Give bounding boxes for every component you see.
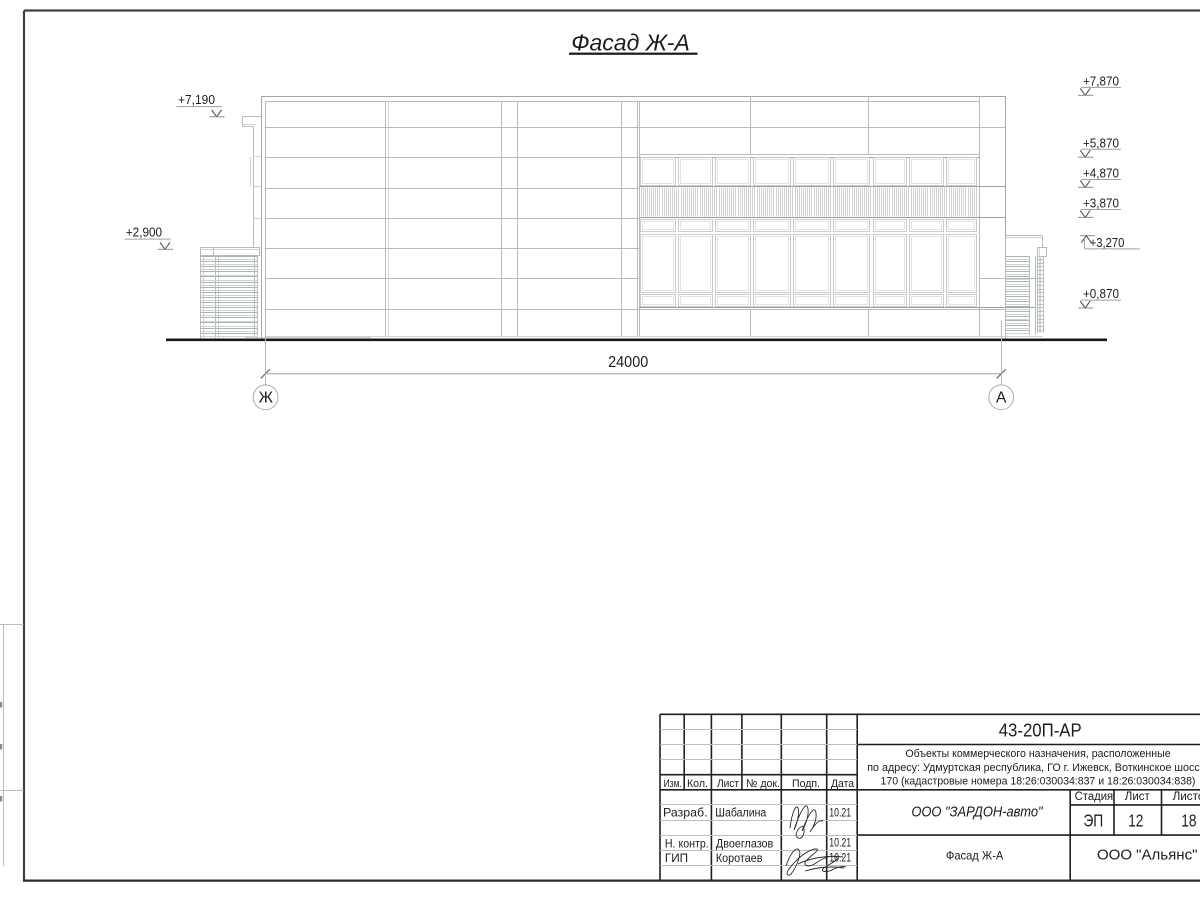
svg-text:Н. контр.: Н. контр.	[665, 836, 709, 850]
svg-text:10.21: 10.21	[829, 806, 851, 820]
svg-text:Кол.: Кол.	[687, 778, 708, 790]
svg-text:+7,870: +7,870	[1083, 74, 1119, 89]
svg-text:Объекты коммерческого назначен: Объекты коммерческого назначения, распол…	[905, 748, 1170, 760]
svg-text:Стадия: Стадия	[1075, 791, 1114, 803]
svg-text:Фасад Ж-А: Фасад Ж-А	[571, 29, 690, 55]
svg-text:+3,270: +3,270	[1090, 235, 1125, 250]
svg-text:ЭП: ЭП	[1083, 810, 1103, 830]
svg-text:Дата: Дата	[831, 778, 855, 790]
svg-text:ГИП: ГИП	[665, 851, 688, 865]
svg-text:Ж: Ж	[259, 390, 274, 407]
svg-text:№ док.: № док.	[746, 778, 780, 790]
svg-text:+3,870: +3,870	[1083, 196, 1119, 211]
svg-text:18: 18	[1181, 810, 1196, 830]
svg-text:12: 12	[1128, 810, 1143, 830]
svg-text:Листов: Листов	[1173, 791, 1200, 803]
svg-text:Шабалина: Шабалина	[715, 806, 766, 820]
svg-text:Коротаев: Коротаев	[716, 851, 763, 865]
svg-text:Разраб.: Разраб.	[663, 806, 708, 820]
svg-text:Лист: Лист	[717, 778, 739, 790]
svg-text:ООО "Альянс": ООО "Альянс"	[1097, 847, 1198, 864]
svg-text:170 (кадастровые номера 18:26:: 170 (кадастровые номера 18:26:030034:837…	[881, 775, 1196, 787]
svg-text:Лист: Лист	[1125, 791, 1151, 803]
svg-text:+2,900: +2,900	[126, 224, 162, 239]
svg-text:+0,870: +0,870	[1083, 286, 1119, 301]
svg-text:Изм.: Изм.	[664, 778, 682, 790]
svg-text:24000: 24000	[608, 354, 648, 371]
svg-text:по адресу: Удмуртская республи: по адресу: Удмуртская республика, ГО г. …	[867, 762, 1200, 774]
svg-text:Фасад Ж-А: Фасад Ж-А	[946, 848, 1004, 862]
svg-text:+5,870: +5,870	[1083, 135, 1119, 150]
svg-text:Двоеглазов: Двоеглазов	[716, 836, 773, 850]
svg-text:Подп.: Подп.	[792, 778, 820, 790]
svg-text:43-20П-АР: 43-20П-АР	[999, 719, 1082, 740]
svg-text:+4,870: +4,870	[1083, 166, 1119, 181]
svg-text:ООО "ЗАРДОН-авто": ООО "ЗАРДОН-авто"	[911, 805, 1043, 821]
svg-text:10.21: 10.21	[829, 835, 851, 849]
svg-text:+7,190: +7,190	[178, 92, 215, 107]
svg-text:А: А	[996, 390, 1007, 407]
